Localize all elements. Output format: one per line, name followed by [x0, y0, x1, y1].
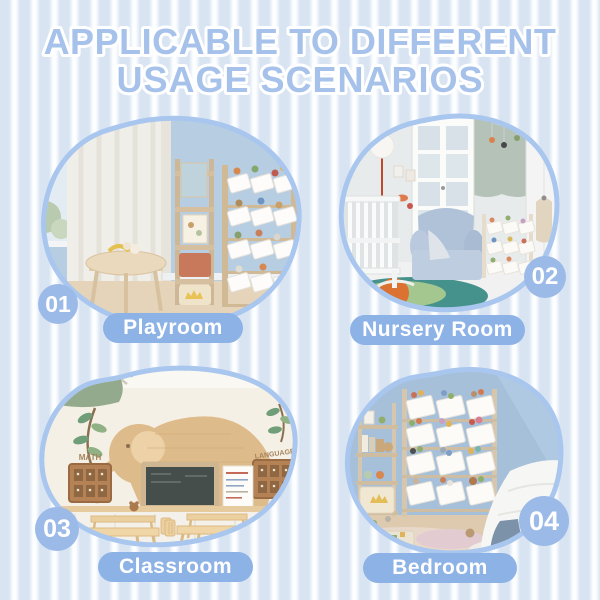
title-line-2: USAGE SCENARIOS: [116, 59, 483, 100]
scenario-card-nursery: 02 Nursery Room: [332, 110, 562, 350]
marketing-infographic: APPLICABLE TO DIFFERENT USAGE SCENARIOS: [0, 0, 600, 600]
scenario-label: Bedroom: [363, 553, 517, 583]
scenario-card-classroom: MATH LANGUAGE: [35, 362, 301, 587]
teddy-on-stool: [129, 501, 139, 511]
leaf-canopy: [35, 362, 123, 407]
scenario-card-playroom: 01 Playroom: [33, 113, 305, 345]
scenario-label: Playroom: [103, 313, 243, 343]
title-line-1: APPLICABLE TO DIFFERENT: [44, 21, 557, 62]
teddy-floor-toy: [466, 529, 475, 538]
ball-toy: [340, 299, 352, 311]
alphabet-board: [223, 466, 253, 508]
math-label: MATH: [79, 453, 102, 462]
recessed-light: [257, 370, 262, 375]
scenario-label: Nursery Room: [350, 315, 525, 345]
shelf-book: [183, 215, 207, 243]
plush-toy: [383, 442, 393, 452]
fabric-bin-red: [179, 253, 211, 277]
scenario-label: Classroom: [98, 552, 253, 582]
scenario-card-bedroom: 04 Bedroom: [340, 363, 566, 587]
chalkboard: [141, 462, 219, 510]
scenario-number-badge: 02: [524, 256, 566, 298]
shelf-mirror: [181, 163, 207, 197]
hanging-coat: [536, 198, 552, 243]
scenario-number-badge: 03: [35, 507, 79, 551]
scenario-number-badge: 01: [38, 284, 78, 324]
scenario-number-badge: 04: [519, 496, 569, 546]
wall-bench: [53, 506, 287, 512]
armchair: [410, 208, 484, 280]
page-title: APPLICABLE TO DIFFERENT USAGE SCENARIOS: [0, 6, 600, 110]
